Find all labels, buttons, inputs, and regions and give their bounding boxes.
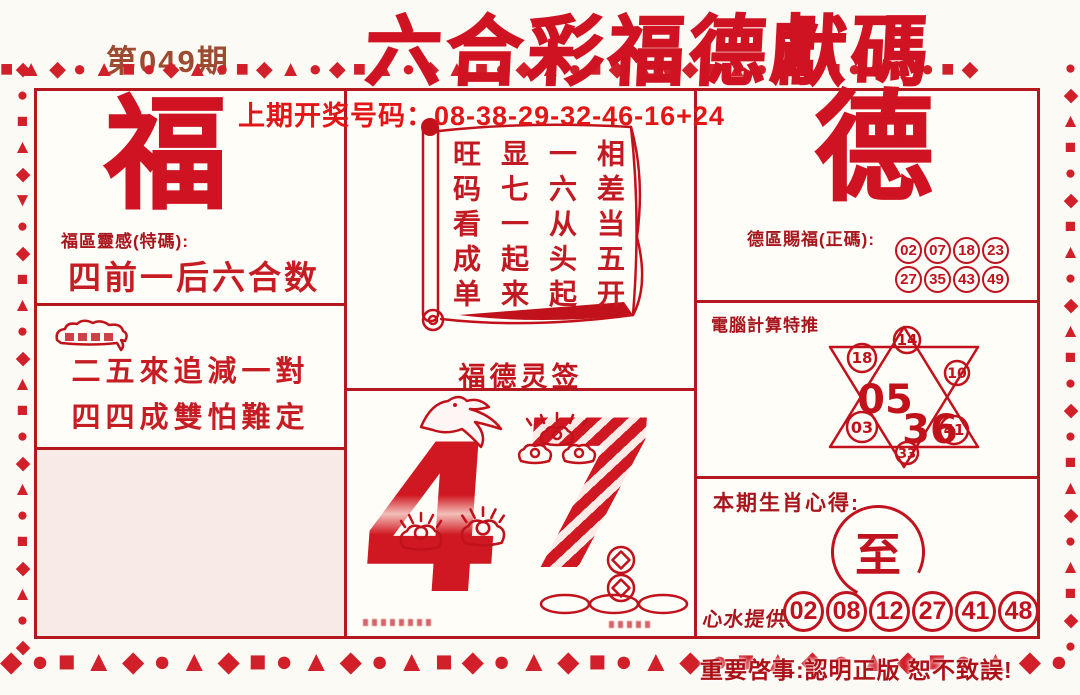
- star-panel: 電腦計算特推 14 18 10 03 41 33 05: [697, 303, 1037, 479]
- ball-number: 27: [912, 591, 953, 632]
- gold-ingot-icon: [393, 503, 449, 555]
- illegible-small-print: [609, 621, 653, 628]
- ball-number: 12: [869, 591, 910, 632]
- ball-number: 48: [998, 591, 1039, 632]
- fu-slogan: 四前一后六合数: [49, 251, 339, 299]
- star-number-top: 14: [897, 331, 918, 349]
- verse-column-3: 显七一起来: [499, 139, 527, 329]
- zodiac-label: 本期生肖心得:: [713, 487, 860, 517]
- eagle-icon: [415, 393, 520, 451]
- ball-number: 43: [953, 266, 980, 293]
- verse-column-1: 相差当五开: [595, 139, 623, 329]
- gold-ingot-trio-icon: [513, 409, 605, 473]
- zodiac-panel: 本期生肖心得: 至 心水提供: 02 08 12 27 41 48: [697, 479, 1037, 636]
- ball-number: 27: [895, 266, 922, 293]
- star-number-upper-right: 10: [947, 366, 967, 382]
- empty-panel: [37, 450, 344, 636]
- couplet-line-2: 四四成雙怕難定: [37, 394, 344, 436]
- zheng-ma-numbers: 02 07 18 23 27 35 43 49: [895, 237, 1013, 293]
- border-pattern-right: ●◆▲■●◆■▲●◆▲■●◆●■▲◆●▲■◆●▲◆■●▲◆●▲■: [1048, 58, 1080, 658]
- tips-numbers: 02 08 12 27 41 48: [783, 591, 1039, 632]
- border-pattern-left: ◆●■▲◆▼●◆■▲●◆▲■●◆▲●■◆▲●◆■▲●◆▲●■◆●: [0, 58, 32, 658]
- fu-big-character: 福: [105, 93, 227, 215]
- ball-number: 02: [783, 591, 824, 632]
- ball-number: 35: [924, 266, 951, 293]
- de-panel: 德 德區賜福(正碼): 02 07 18 23 27 35 43 49: [697, 91, 1037, 303]
- art-panel: 4 7: [347, 391, 694, 636]
- de-zone-label: 德區賜福(正碼):: [747, 225, 875, 250]
- verse-column-4: 旺码看成单: [451, 139, 479, 329]
- ball-number: 08: [826, 591, 867, 632]
- computer-pick-label: 電腦計算特推: [711, 311, 819, 336]
- star-center-number-2: 36: [902, 407, 958, 453]
- gold-ingot-icon: [453, 497, 513, 551]
- illegible-small-print: [363, 619, 433, 626]
- coin-chain-icon: [539, 593, 689, 615]
- lottery-sheet: 第049期 六合彩福德獻碼 上期开奖号码：08-38-29-32-46-16+2…: [0, 0, 1080, 695]
- couplet-panel: 二五來追減一對 四四成雙怕難定: [37, 306, 344, 450]
- cloud-stamp-icon: [51, 316, 133, 352]
- verse-column-2: 一六从头起: [547, 139, 575, 329]
- scroll-panel: 相差当五开 一六从头起 显七一起来 旺码看成单 福德灵签: [347, 91, 694, 391]
- footer-notice: 重要啓事:認明正版 恕不致誤!: [700, 651, 1013, 685]
- star-number-upper-left: 18: [852, 349, 873, 367]
- ball-number: 02: [895, 237, 922, 264]
- page-title: 六合彩福德獻碼: [363, 0, 936, 100]
- fu-zone-label: 福區靈感(特碼):: [61, 227, 189, 252]
- main-frame: 福 福區靈感(特碼): 四前一后六合数 二五來追減一對 四四成雙怕難定: [34, 88, 1040, 639]
- hexagram-star-icon: 14 18 10 03 41 33 05 36: [817, 323, 992, 471]
- ball-number: 18: [953, 237, 980, 264]
- couplet-line-1: 二五來追減一對: [37, 348, 344, 390]
- zodiac-character: 至: [855, 519, 901, 585]
- previous-draw-numbers: 上期开奖号码：08-38-29-32-46-16+24: [238, 94, 725, 133]
- de-big-character: 德: [815, 89, 933, 207]
- middle-column: 相差当五开 一六从头起 显七一起来 旺码看成单 福德灵签 4 7: [347, 91, 697, 636]
- left-column: 福 福區靈感(特碼): 四前一后六合数 二五來追減一對 四四成雙怕難定: [37, 91, 347, 636]
- ball-number: 07: [924, 237, 951, 264]
- scroll-verse: 相差当五开 一六从头起 显七一起来 旺码看成单: [451, 139, 623, 329]
- right-column: 德 德區賜福(正碼): 02 07 18 23 27 35 43 49 電腦計算…: [697, 91, 1037, 636]
- ball-number: 41: [955, 591, 996, 632]
- ball-number: 49: [982, 266, 1009, 293]
- ball-number: 23: [982, 237, 1009, 264]
